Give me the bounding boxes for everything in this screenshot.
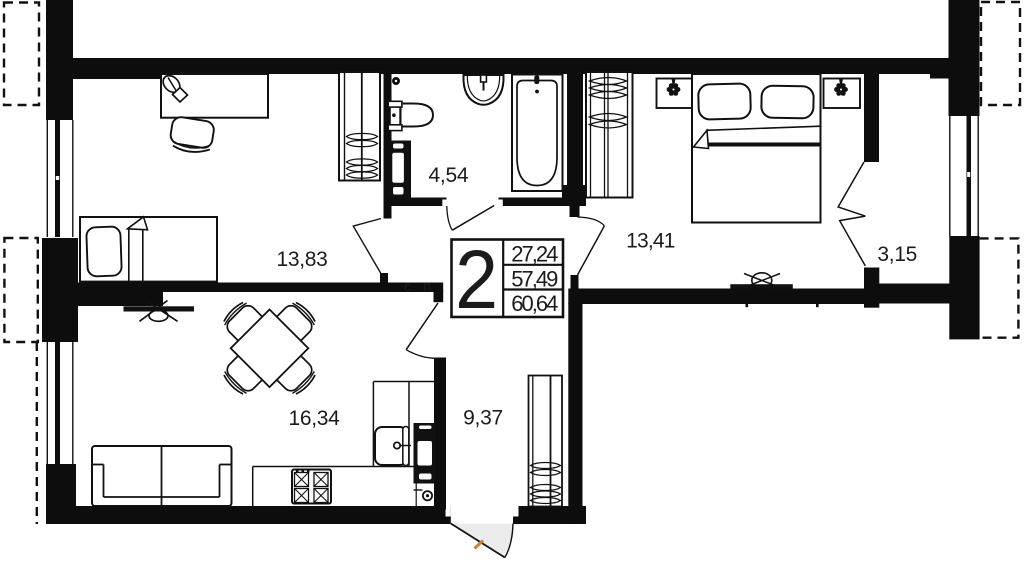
svg-text:с: с bbox=[404, 279, 412, 296]
svg-text:13,41: 13,41 bbox=[626, 230, 675, 253]
svg-text:60,64: 60,64 bbox=[511, 291, 558, 316]
svg-text:3,15: 3,15 bbox=[877, 243, 917, 266]
svg-text:57,49: 57,49 bbox=[511, 267, 558, 292]
svg-text:4,54: 4,54 bbox=[429, 164, 469, 187]
svg-text:27,24: 27,24 bbox=[511, 242, 558, 267]
svg-text:13,83: 13,83 bbox=[276, 248, 327, 271]
svg-text:2: 2 bbox=[455, 232, 498, 325]
svg-text:16,34: 16,34 bbox=[288, 407, 340, 430]
svg-text:п: п bbox=[423, 279, 431, 296]
svg-text:9,37: 9,37 bbox=[463, 407, 503, 430]
